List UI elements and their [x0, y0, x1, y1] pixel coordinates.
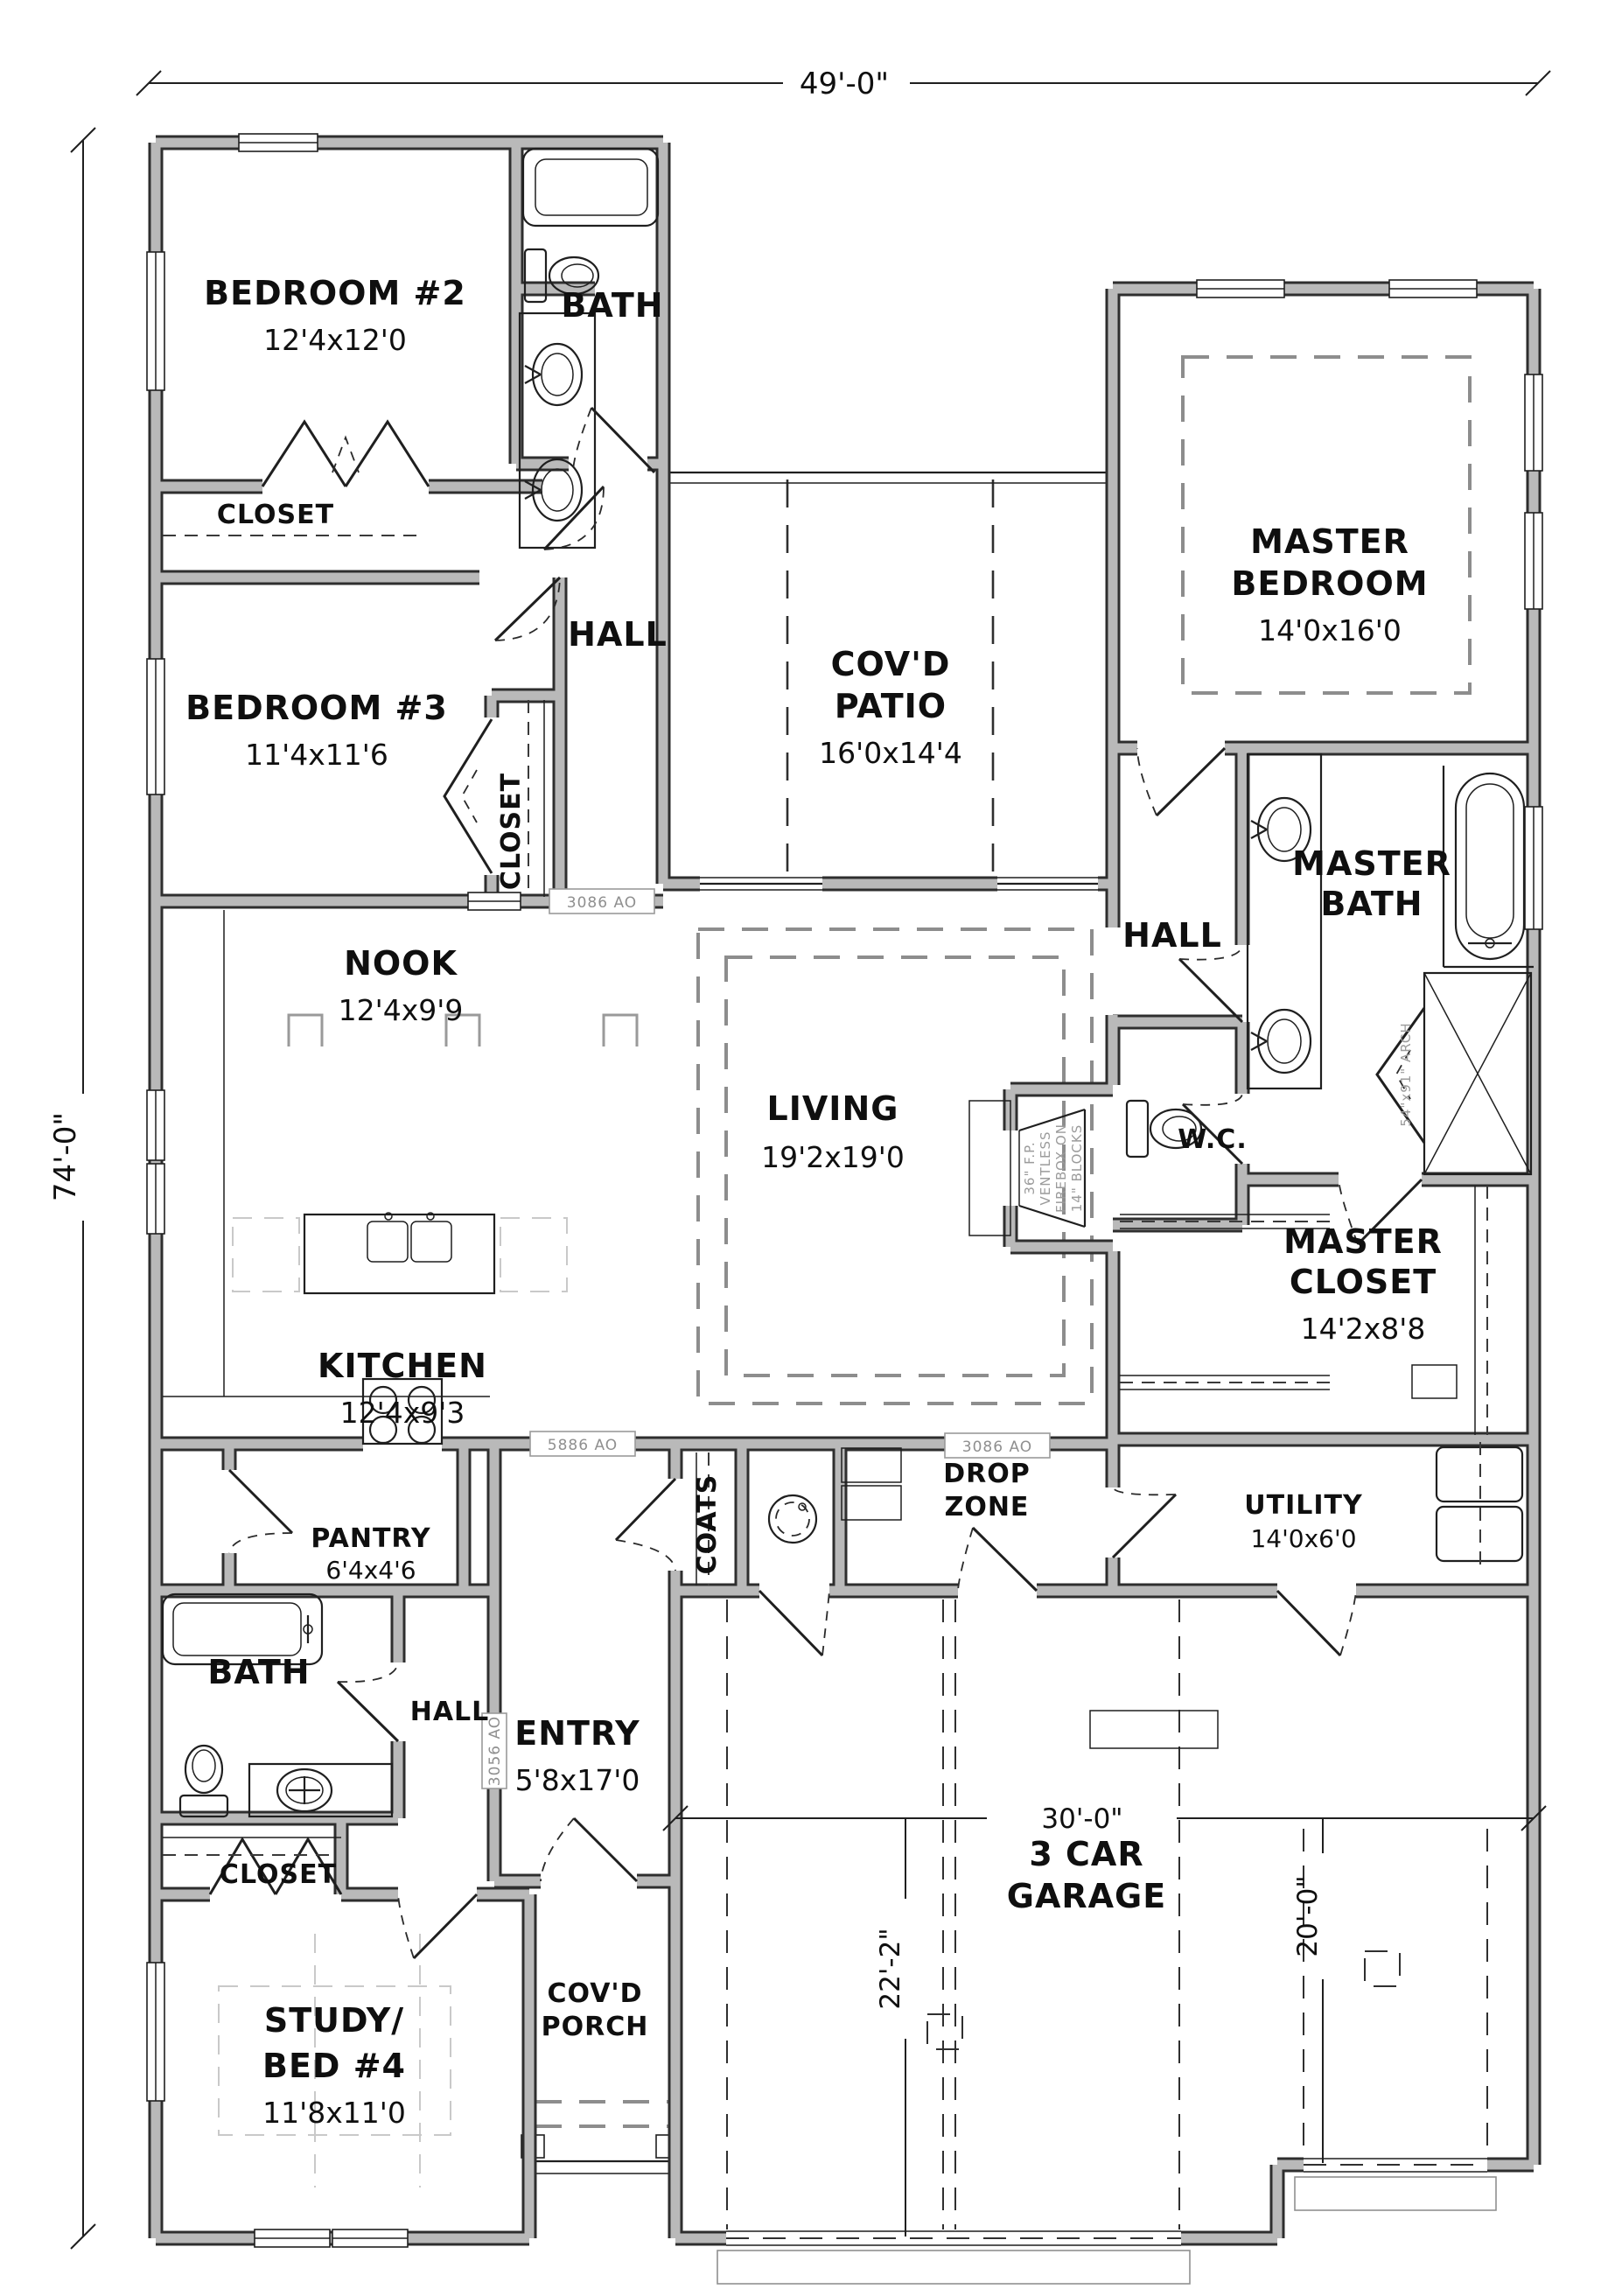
label-master-closet-1: MASTER — [1283, 1222, 1443, 1261]
label-hall-entry: HALL — [410, 1697, 490, 1727]
label-closet4: CLOSET — [220, 1859, 337, 1890]
walls-fill — [156, 143, 1534, 2238]
dim-overall-height: 74'-0" — [48, 1112, 83, 1201]
label-hall-master: HALL — [1122, 916, 1222, 955]
tag-kitchen-opening: 5886 AO — [548, 1437, 618, 1454]
label-patio-1: COV'D — [831, 645, 951, 683]
dim-overall-width: 49'-0" — [800, 66, 889, 101]
label-drop-zone-2: ZONE — [945, 1492, 1030, 1522]
size-bedroom2: 12'4x12'0 — [263, 323, 407, 357]
label-master-bedroom-2: BEDROOM — [1231, 564, 1428, 603]
label-garage-2: GARAGE — [1007, 1877, 1166, 1915]
label-closet2: CLOSET — [217, 500, 334, 530]
size-pantry: 6'4x4'6 — [325, 1556, 416, 1585]
annotation-fireplace-3: FIREBOX ON — [1053, 1123, 1069, 1213]
label-closet3: CLOSET — [496, 773, 527, 890]
label-porch-1: COV'D — [547, 1978, 642, 2009]
label-study-1: STUDY/ — [264, 2001, 404, 2040]
label-bedroom3: BEDROOM #3 — [185, 689, 448, 727]
walls-outline — [156, 143, 1534, 2238]
label-master-bath-2: BATH — [1320, 885, 1423, 923]
label-nook: NOOK — [344, 944, 458, 983]
label-master-bath-1: MASTER — [1292, 844, 1451, 883]
tag-dropzone-opening: 3086 AO — [962, 1438, 1032, 1456]
label-bedroom2: BEDROOM #2 — [204, 274, 466, 312]
label-pantry: PANTRY — [311, 1523, 430, 1554]
label-living: LIVING — [767, 1089, 899, 1128]
floor-plan: 3086 AO 5886 AO 3086 AO 3056 AO 49'-0" 7… — [0, 0, 1601, 2296]
dim-garage-width: 30'-0" — [1041, 1803, 1122, 1835]
annotation-fireplace-1: 36" F.P. — [0, 0, 27, 3]
garage-doors — [717, 2159, 1496, 2284]
label-hall-bed: HALL — [568, 615, 668, 654]
label-patio-2: PATIO — [835, 687, 947, 725]
slab-edges — [521, 472, 1113, 2173]
size-patio: 16'0x14'4 — [819, 736, 962, 770]
size-study: 11'8x11'0 — [262, 2096, 406, 2130]
size-master-bedroom: 14'0x16'0 — [1258, 613, 1402, 647]
size-bedroom3: 11'4x11'6 — [245, 738, 388, 772]
label-entry: ENTRY — [514, 1714, 640, 1753]
label-master-bedroom-1: MASTER — [1250, 522, 1409, 561]
tag-hall-opening: 3086 AO — [567, 894, 637, 912]
bath3-fixtures — [163, 1594, 392, 1816]
utility-fixtures — [1437, 1442, 1522, 1566]
label-garage-1: 3 CAR — [1029, 1835, 1143, 1873]
label-bath2: BATH — [561, 286, 663, 325]
annotation-fireplace-4: 14" BLOCKS — [1069, 1124, 1085, 1213]
label-porch-2: PORCH — [542, 2012, 649, 2042]
size-kitchen: 12'4x9'3 — [340, 1396, 465, 1430]
windows — [147, 134, 1542, 2247]
label-drop-zone-1: DROP — [943, 1459, 1031, 1489]
opening-tags: 3086 AO 5886 AO 3086 AO 3056 AO — [482, 889, 1050, 1788]
label-utility: UTILITY — [1244, 1490, 1363, 1521]
size-living: 19'2x19'0 — [761, 1140, 905, 1174]
label-bath3: BATH — [207, 1653, 310, 1691]
size-nook: 12'4x9'9 — [339, 993, 464, 1027]
label-kitchen: KITCHEN — [318, 1347, 487, 1385]
floor-plan-drawing: 3086 AO 5886 AO 3086 AO 3056 AO 49'-0" 7… — [0, 0, 1601, 2296]
dim-garage-right-bay: 20'-0" — [1292, 1875, 1324, 1956]
annotation-fireplace-2: VENTLESS — [1038, 1131, 1053, 1206]
annotation-fireplace-1b: 36" F.P. — [1022, 1141, 1038, 1194]
annotation-shower-arch: 54"x91" ARCH — [1398, 1022, 1414, 1126]
size-utility: 14'0x6'0 — [1250, 1524, 1356, 1553]
dim-garage-left-bay: 22'-2" — [875, 1928, 906, 2009]
size-entry: 5'8x17'0 — [515, 1763, 640, 1797]
label-coats: COATS — [692, 1474, 723, 1575]
label-wc: W.C. — [1178, 1124, 1247, 1155]
label-master-closet-2: CLOSET — [1290, 1263, 1437, 1301]
label-study-2: BED #4 — [262, 2047, 406, 2085]
size-master-closet: 14'2x8'8 — [1301, 1312, 1426, 1346]
master-bath-fixtures — [1127, 754, 1534, 1174]
